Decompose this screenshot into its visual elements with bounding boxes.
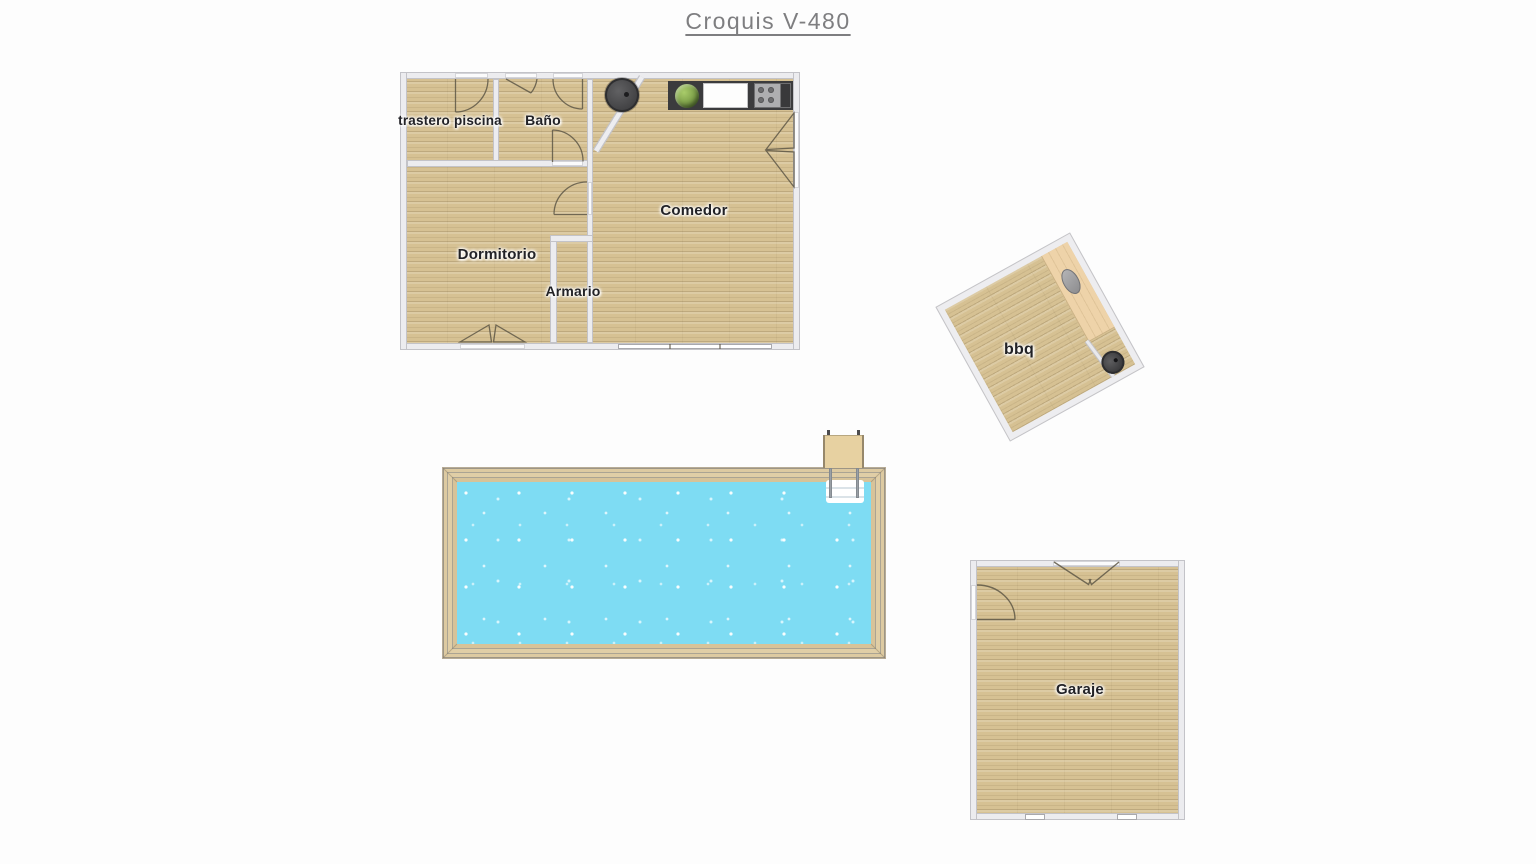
- pool-ladder-rail-icon: [829, 468, 832, 498]
- floorplan-canvas: Croquis V-480: [0, 0, 1536, 864]
- page-title: Croquis V-480: [0, 8, 1536, 35]
- room-label-garaje: Garaje: [1020, 681, 1140, 698]
- room-label-bbq: bbq: [969, 341, 1069, 359]
- bbq-room-outline: [937, 234, 1144, 441]
- room-label-dormitorio: Dormitorio: [427, 246, 567, 263]
- room-label-comedor: Comedor: [634, 202, 754, 219]
- pool-frame: [443, 468, 885, 658]
- wood-stove-icon: [605, 78, 639, 112]
- pool-ladder-platform: [823, 435, 864, 468]
- pool-frame-miters: [443, 468, 885, 658]
- bbq-partition: [945, 242, 1135, 432]
- room-label-armario: Armario: [513, 283, 633, 299]
- room-label-bano: Baño: [503, 112, 583, 128]
- pool-ladder-rail-icon: [856, 468, 859, 498]
